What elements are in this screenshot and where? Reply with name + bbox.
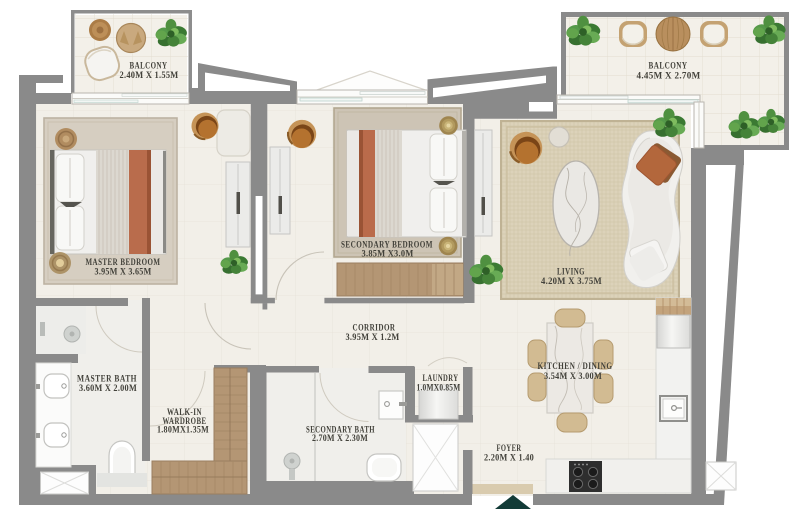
svg-text:LIVING: LIVING bbox=[557, 268, 585, 278]
svg-text:3.95M X 3.65M: 3.95M X 3.65M bbox=[95, 268, 152, 278]
svg-text:3.60M X 2.00M: 3.60M X 2.00M bbox=[79, 384, 137, 394]
svg-text:FOYER: FOYER bbox=[497, 444, 522, 454]
svg-text:4.20M X 3.75M: 4.20M X 3.75M bbox=[541, 277, 602, 287]
svg-text:3.95M X 1.2M: 3.95M X 1.2M bbox=[346, 333, 400, 343]
svg-text:2.40M X 1.55M: 2.40M X 1.55M bbox=[120, 71, 179, 81]
svg-text:2.70M X 2.30M: 2.70M X 2.30M bbox=[312, 434, 368, 444]
svg-text:MASTER BEDROOM: MASTER BEDROOM bbox=[86, 258, 161, 268]
svg-text:1.0MX0.85M: 1.0MX0.85M bbox=[417, 384, 461, 394]
svg-text:4.45M X 2.70M: 4.45M X 2.70M bbox=[637, 72, 701, 82]
svg-text:BALCONY: BALCONY bbox=[130, 62, 168, 72]
svg-text:2.20M X 1.40: 2.20M X 1.40 bbox=[484, 454, 534, 464]
svg-text:1.80MX1.35M: 1.80MX1.35M bbox=[157, 426, 209, 436]
svg-text:LAUNDRY: LAUNDRY bbox=[423, 374, 459, 384]
svg-text:3.54M X 3.00M: 3.54M X 3.00M bbox=[544, 372, 602, 382]
svg-text:KITCHEN / DINING: KITCHEN / DINING bbox=[538, 362, 613, 372]
svg-text:MASTER BATH: MASTER BATH bbox=[77, 375, 137, 385]
svg-text:BALCONY: BALCONY bbox=[649, 62, 688, 72]
svg-text:CORRIDOR: CORRIDOR bbox=[353, 324, 396, 334]
svg-text:3.85M X3.0M: 3.85M X3.0M bbox=[362, 250, 414, 260]
